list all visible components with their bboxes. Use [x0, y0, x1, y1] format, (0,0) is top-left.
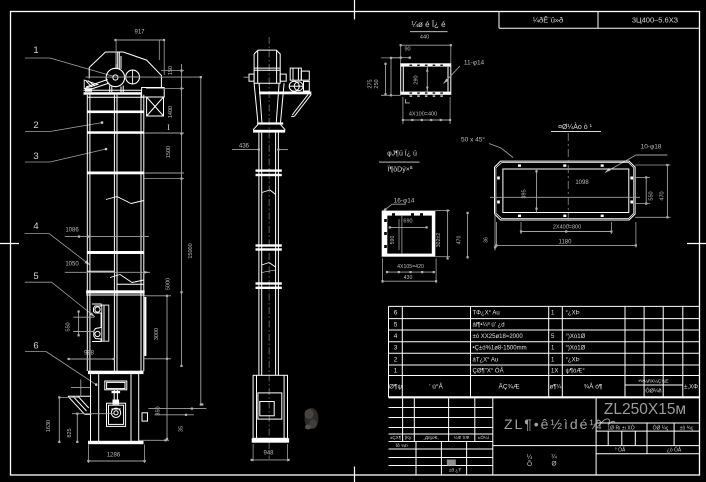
svg-text:±ò ¾ç: ±ò ¾ç — [680, 425, 694, 431]
svg-text:ÓØ ¼ç: ÓØ ¼ç — [653, 424, 669, 431]
svg-text:15000: 15000 — [188, 243, 194, 258]
svg-text:Ïð ¾Þ: Ïð ¾Þ — [396, 442, 409, 449]
svg-text:550: 550 — [66, 322, 72, 331]
svg-text:I: I — [167, 122, 170, 132]
svg-text:1Ø Rı ±ı XÒ: 1Ø Rı ±ı XÒ — [607, 424, 634, 431]
svg-text:1400: 1400 — [168, 106, 174, 118]
svg-text:5: 5 — [33, 271, 38, 282]
svg-text:ÃÇ¾Æ: ÃÇ¾Æ — [499, 382, 520, 391]
svg-text:¾Å ó¶: ¾Å ó¶ — [584, 382, 603, 391]
svg-text:¼: ¼ — [527, 454, 533, 461]
svg-text:1098: 1098 — [575, 180, 589, 186]
svg-text:1X: 1X — [551, 368, 558, 374]
svg-text:áT¿X° Au: áT¿X° Au — [473, 357, 499, 363]
svg-text:Ø: Ø — [551, 461, 556, 468]
svg-text:825: 825 — [67, 428, 73, 437]
svg-text:4: 4 — [394, 333, 398, 340]
svg-text:Ø¶ψ: Ø¶ψ — [389, 384, 403, 391]
svg-text:°¿XÞ: °¿XÞ — [566, 311, 580, 317]
svg-text:470: 470 — [457, 236, 463, 245]
svg-text:35: 35 — [179, 426, 185, 432]
svg-text:¼ðÊ¨û»ð: ¼ðÊ¨û»ð — [533, 16, 563, 25]
svg-text:2: 2 — [394, 356, 398, 363]
svg-text:ál¶•¼ª ú' ¿d: ál¶•¼ª ú' ¿d — [473, 322, 505, 329]
svg-text:290: 290 — [414, 75, 420, 84]
svg-text:ÓØ¼ñ: ÓØ¼ñ — [645, 388, 661, 395]
svg-text:' ú°Å: ' ú°Å — [429, 382, 443, 391]
svg-text:430: 430 — [404, 275, 413, 281]
svg-text:90: 90 — [404, 47, 410, 53]
svg-text:948: 948 — [263, 451, 274, 457]
svg-text:Õ: Õ — [527, 459, 532, 468]
svg-text:¼ø é Ï¿ é: ¼ø é Ï¿ é — [411, 20, 446, 29]
svg-text:ψ¶óÆ°: ψ¶óÆ° — [566, 368, 586, 374]
svg-text:470: 470 — [660, 191, 666, 200]
svg-text:1: 1 — [394, 367, 398, 374]
svg-text:¼: ¼ — [551, 454, 557, 461]
svg-text:±ð ¿Ŧ: ±ð ¿Ŧ — [449, 467, 462, 474]
svg-text:°¿XÞ: °¿XÞ — [566, 357, 580, 363]
svg-text:1050: 1050 — [65, 262, 79, 268]
svg-text:3Ц400–5.6ХЗ: 3Ц400–5.6ХЗ — [632, 16, 679, 25]
svg-text:•Ψ¼ñX¼Ç¾E: •Ψ¼ñX¼Ç¾E — [638, 379, 668, 385]
svg-text:917: 917 — [134, 30, 145, 36]
svg-text:690: 690 — [403, 219, 412, 225]
svg-text:550: 550 — [649, 191, 655, 200]
svg-text:ZL¶•ê½ìdé¼: ZL¶•ê½ìdé¼ — [504, 416, 601, 432]
svg-text:10-φ18: 10-φ18 — [641, 144, 662, 151]
svg-text:¿ò ÓÅ: ¿ò ÓÅ — [667, 447, 682, 454]
svg-text:4X105=420: 4X105=420 — [397, 264, 424, 270]
svg-text:3000: 3000 — [154, 328, 160, 340]
svg-text:±,XΦ: ±,XΦ — [684, 385, 698, 391]
svg-text:1180: 1180 — [559, 239, 573, 245]
svg-text:1286: 1286 — [107, 453, 121, 459]
svg-text:¤Ø¼Ào ò ¹: ¤Ø¼Ào ò ¹ — [558, 122, 593, 131]
svg-text:590: 590 — [390, 236, 396, 245]
svg-text:1: 1 — [33, 45, 38, 56]
svg-text:36: 36 — [484, 237, 490, 243]
svg-text:5: 5 — [394, 322, 398, 329]
svg-text:16-φ14: 16-φ14 — [394, 198, 415, 205]
svg-text:6: 6 — [394, 310, 398, 317]
svg-text:6: 6 — [33, 341, 38, 352]
svg-text:°)Χó1Ø: °)Χó1Ø — [566, 334, 586, 340]
svg-text:(Ку: (Ку — [405, 435, 412, 440]
svg-text:1086: 1086 — [65, 228, 79, 234]
svg-text:275: 275 — [368, 79, 374, 88]
svg-text:440: 440 — [420, 35, 429, 41]
svg-text:±ÇΧ¶: ±ÇΧ¶ — [390, 435, 402, 440]
svg-text:5000: 5000 — [166, 278, 172, 290]
svg-text:φJ¶ú Ï¿ ú: φJ¶ú Ï¿ ú — [387, 150, 417, 158]
svg-text:±ó XX25ø18=2000: ±ó XX25ø18=2000 — [473, 334, 524, 340]
svg-text:4X100=400: 4X100=400 — [409, 112, 437, 118]
svg-text:302±2: 302±2 — [436, 233, 442, 248]
svg-text:ZL250X15м: ZL250X15м — [604, 401, 686, 418]
svg-text:11-φ14: 11-φ14 — [464, 60, 485, 67]
svg-text:ьÓ¼ì: ьÓ¼ì — [478, 434, 489, 440]
svg-text:•Ç±ó%1ø8-1500mm: •Ç±ó%1ø8-1500mm — [473, 346, 527, 352]
svg-text:° ÓÅ: ° ÓÅ — [615, 447, 626, 454]
svg-text:ÇØ¶"X° ÓÅ: ÇØ¶"X° ÓÅ — [473, 367, 504, 374]
svg-text:50 x 45°: 50 x 45° — [461, 136, 485, 144]
svg-text:1500: 1500 — [166, 146, 172, 158]
svg-text:2: 2 — [33, 120, 38, 131]
svg-text:250: 250 — [374, 79, 380, 88]
svg-text:3: 3 — [394, 345, 398, 352]
svg-text:TΦ¿X° Au: TΦ¿X° Au — [473, 311, 500, 317]
svg-text:2X400=800: 2X400=800 — [553, 225, 581, 231]
svg-text:ø¶¼: ø¶¼ — [550, 385, 563, 391]
svg-text:3: 3 — [33, 151, 38, 162]
svg-text:1630: 1630 — [46, 420, 52, 432]
svg-text:350: 350 — [156, 406, 162, 415]
svg-text:395: 395 — [522, 189, 528, 198]
svg-text:436: 436 — [239, 144, 250, 150]
svg-text:°)Χó1Ø: °)Χó1Ø — [566, 346, 586, 352]
svg-text:988: 988 — [84, 351, 95, 357]
svg-text:4: 4 — [33, 221, 38, 232]
svg-text:¼Φ ΧΦ: ¼Φ ΧΦ — [454, 435, 470, 440]
svg-text:Ï¶òDý×ª: Ï¶òDý×ª — [388, 166, 413, 174]
